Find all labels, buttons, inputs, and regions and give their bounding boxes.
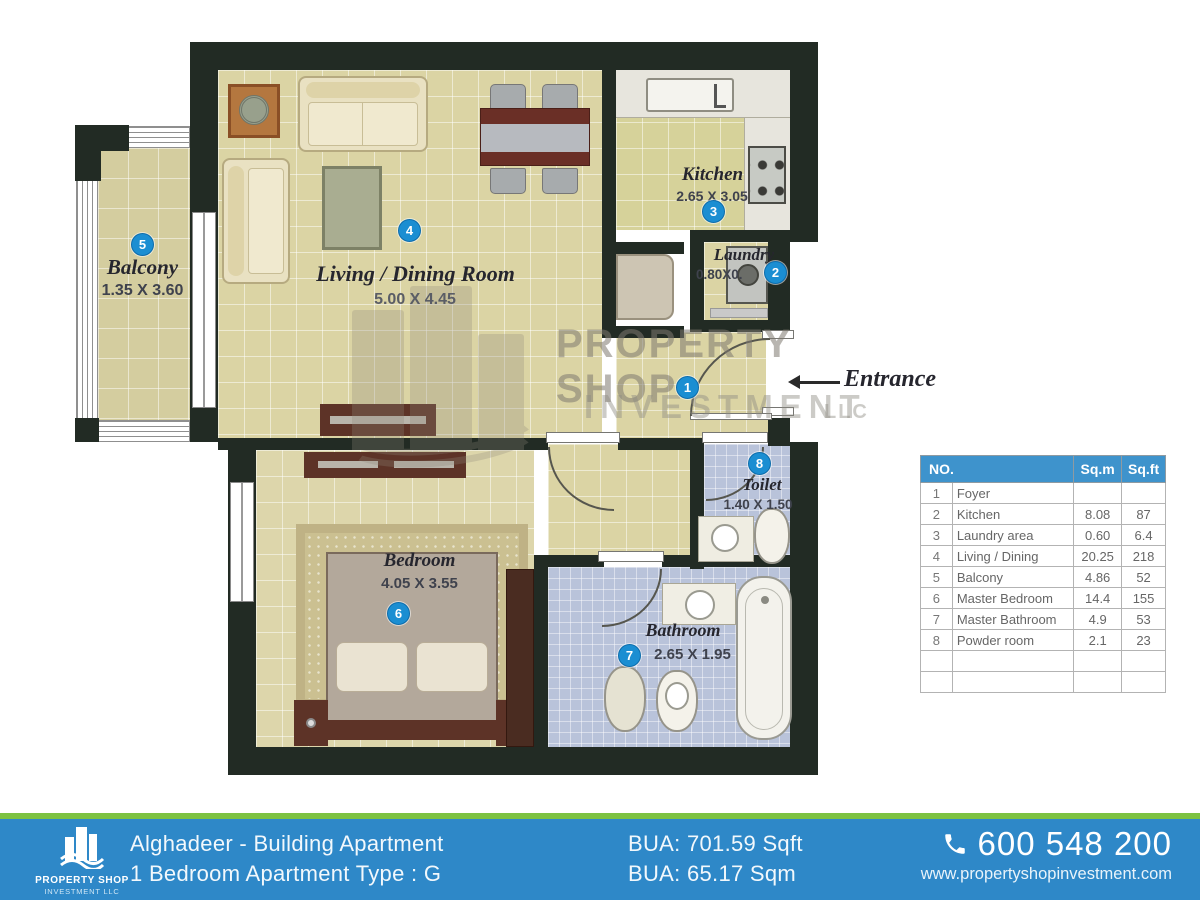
badge-bathroom: 7 [618,644,641,667]
bedroom-window [230,482,254,602]
cell-sqft: 23 [1122,630,1166,651]
sofa-two-seat [298,76,428,152]
cell-sqft: 53 [1122,609,1166,630]
dining-chair [542,84,578,110]
entrance-arrow [788,374,840,390]
cell-no: 1 [921,483,953,504]
hall-door-frame [546,432,620,443]
badge-kitchen: 3 [702,200,725,223]
dining-chair [542,168,578,194]
toilet-door-frame [702,432,768,443]
cell-no: 2 [921,504,953,525]
sink-faucet [714,84,726,108]
table-row [921,672,1166,693]
table-row: 2Kitchen8.0887 [921,504,1166,525]
brand-subname: INVESTMENT LLC [32,887,132,896]
cell-sqft [1122,483,1166,504]
console-shelf [394,461,454,468]
balcony-railing-top [128,126,190,148]
dining-chair [490,84,526,110]
room-label-bedroom: Bedroom [352,550,487,572]
brand-logo: PROPERTY SHOP INVESTMENT LLC [32,825,132,895]
footer-bar: PROPERTY SHOP INVESTMENT LLC Alghadeer -… [0,819,1200,900]
project-title: Alghadeer - Building Apartment [130,831,444,857]
phone-number: 600 548 200 [977,825,1172,863]
cell-room: Living / Dining [952,546,1073,567]
bua-sqft: BUA: 701.59 Sqft [628,831,803,857]
room-dims-bedroom: 4.05 X 3.55 [352,575,487,592]
wall [602,326,684,338]
cell-room: Master Bedroom [952,588,1073,609]
tv-console-bedroom [304,452,466,478]
bua-sqm: BUA: 65.17 Sqm [628,861,796,887]
flyer-canvas: 1 2 3 4 5 6 7 8 Balcony 1.35 X 3.60 Livi… [0,0,1200,900]
dining-chair [490,168,526,194]
toilet-fixture [656,670,698,732]
bathroom-door-frame [598,551,664,562]
tv-console-living [320,404,436,436]
balcony-corner-block [75,418,99,442]
cell-no [921,651,953,672]
table-row: 7Master Bathroom4.953 [921,609,1166,630]
badge-toilet: 8 [748,452,771,475]
cell-sqft [1122,651,1166,672]
brand-logo-icon [59,825,105,869]
area-table: NO. Sq.m Sq.ft 1Foyer 2Kitchen8.0887 3La… [920,455,1166,693]
wall [534,555,604,567]
sofa-seat [308,102,418,146]
cell-no: 6 [921,588,953,609]
console-shelf [330,416,426,424]
table-row: 1Foyer [921,483,1166,504]
cell-sqm: 4.86 [1074,567,1122,588]
kitchen-sink [646,78,734,112]
arrow-line [798,381,840,384]
badge-bedroom: 6 [387,602,410,625]
cell-no: 3 [921,525,953,546]
cell-room: Powder room [952,630,1073,651]
phone-icon [942,831,968,857]
bidet [604,666,646,732]
wall [228,747,818,775]
contact-block: 600 548 200 www.propertyshopinvestment.c… [921,825,1172,884]
room-dims-balcony: 1.35 X 3.60 [80,282,205,300]
sink-basin [711,524,739,552]
room-dims-toilet: 1.40 X 1.50 [706,497,810,512]
room-label-living: Living / Dining Room [298,261,533,287]
cell-room [952,651,1073,672]
powder-toilet-fixture [754,508,790,564]
balcony-railing-left [76,180,98,422]
bed-pillow [336,642,408,692]
cell-no: 5 [921,567,953,588]
sink-basin [685,590,715,620]
col-header-sqm: Sq.m [1074,456,1122,483]
bed-headboard [322,720,502,740]
sofa-seat [248,168,284,274]
bathroom-vanity [662,583,736,625]
balcony-window [192,212,216,408]
brand-name: PROPERTY SHOP [32,875,132,886]
cell-room: Laundry area [952,525,1073,546]
sofa-seat-divider [362,102,363,146]
table-row: 8Powder room2.123 [921,630,1166,651]
cell-sqm [1074,672,1122,693]
room-label-kitchen: Kitchen [650,164,775,186]
cell-sqm: 4.9 [1074,609,1122,630]
cell-sqft: 218 [1122,546,1166,567]
cell-no: 4 [921,546,953,567]
nightstand-knob [306,718,316,728]
balcony-railing-bottom [98,420,190,442]
entrance-label: Entrance [844,366,954,393]
cell-room [952,672,1073,693]
wardrobe [506,569,534,747]
cell-no: 7 [921,609,953,630]
cell-room: Master Bathroom [952,609,1073,630]
powder-vanity [698,516,754,562]
bathtub-drain [761,596,769,604]
watermark-text-line3: LLC [824,401,869,424]
nightstand [294,700,328,746]
table-header-row: NO. Sq.m Sq.ft [921,456,1166,483]
project-subtitle: 1 Bedroom Apartment Type : G [130,861,441,887]
cell-sqm: 2.1 [1074,630,1122,651]
wall [190,42,818,70]
laundry-shelf [710,308,768,318]
table-row: 3Laundry area0.606.4 [921,525,1166,546]
col-header-sqft: Sq.ft [1122,456,1166,483]
table-row: 4Living / Dining20.25218 [921,546,1166,567]
table-row [921,651,1166,672]
room-dims-bathroom: 2.65 X 1.95 [640,646,745,663]
cell-room: Kitchen [952,504,1073,525]
cell-sqft: 52 [1122,567,1166,588]
room-label-balcony: Balcony [80,255,205,280]
cell-sqft: 155 [1122,588,1166,609]
wall [602,242,616,338]
cell-sqm: 0.60 [1074,525,1122,546]
cell-sqm: 20.25 [1074,546,1122,567]
cell-sqm: 8.08 [1074,504,1122,525]
balcony-corner-block [75,125,101,181]
bathtub-inner [745,588,783,730]
sofa-back [228,166,244,276]
cell-sqft: 87 [1122,504,1166,525]
cell-sqft: 6.4 [1122,525,1166,546]
cell-sqm [1074,651,1122,672]
badge-foyer: 1 [676,376,699,399]
dining-table [480,108,590,166]
sofa-single [222,158,290,284]
corner-plant-table [228,84,280,138]
wall [534,555,548,747]
cell-room: Balcony [952,567,1073,588]
wall [690,230,790,242]
wall [602,70,616,246]
cell-room: Foyer [952,483,1073,504]
sofa-back [306,82,420,98]
table-row: 6Master Bedroom14.4155 [921,588,1166,609]
plant-icon [239,95,269,125]
website-url: www.propertyshopinvestment.com [921,865,1172,884]
room-label-toilet: Toilet [716,475,808,495]
cell-sqft [1122,672,1166,693]
cell-sqm: 14.4 [1074,588,1122,609]
cell-no [921,672,953,693]
badge-laundry: 2 [764,261,787,284]
toilet-bowl [665,682,689,710]
cell-sqm [1074,483,1122,504]
table-runner [481,124,589,152]
badge-living: 4 [398,219,421,242]
bed-pillow [416,642,488,692]
table-row: 5Balcony4.8652 [921,567,1166,588]
console-shelf [318,461,378,468]
room-dims-living: 5.00 X 4.45 [330,291,500,309]
foyer-closet [616,254,674,320]
badge-balcony: 5 [131,233,154,256]
cell-no: 8 [921,630,953,651]
wall [768,418,790,446]
col-header-no: NO. [921,456,1074,483]
coffee-table [322,166,382,250]
wall [218,438,548,450]
wall [790,42,818,242]
room-label-bathroom: Bathroom [628,620,738,641]
